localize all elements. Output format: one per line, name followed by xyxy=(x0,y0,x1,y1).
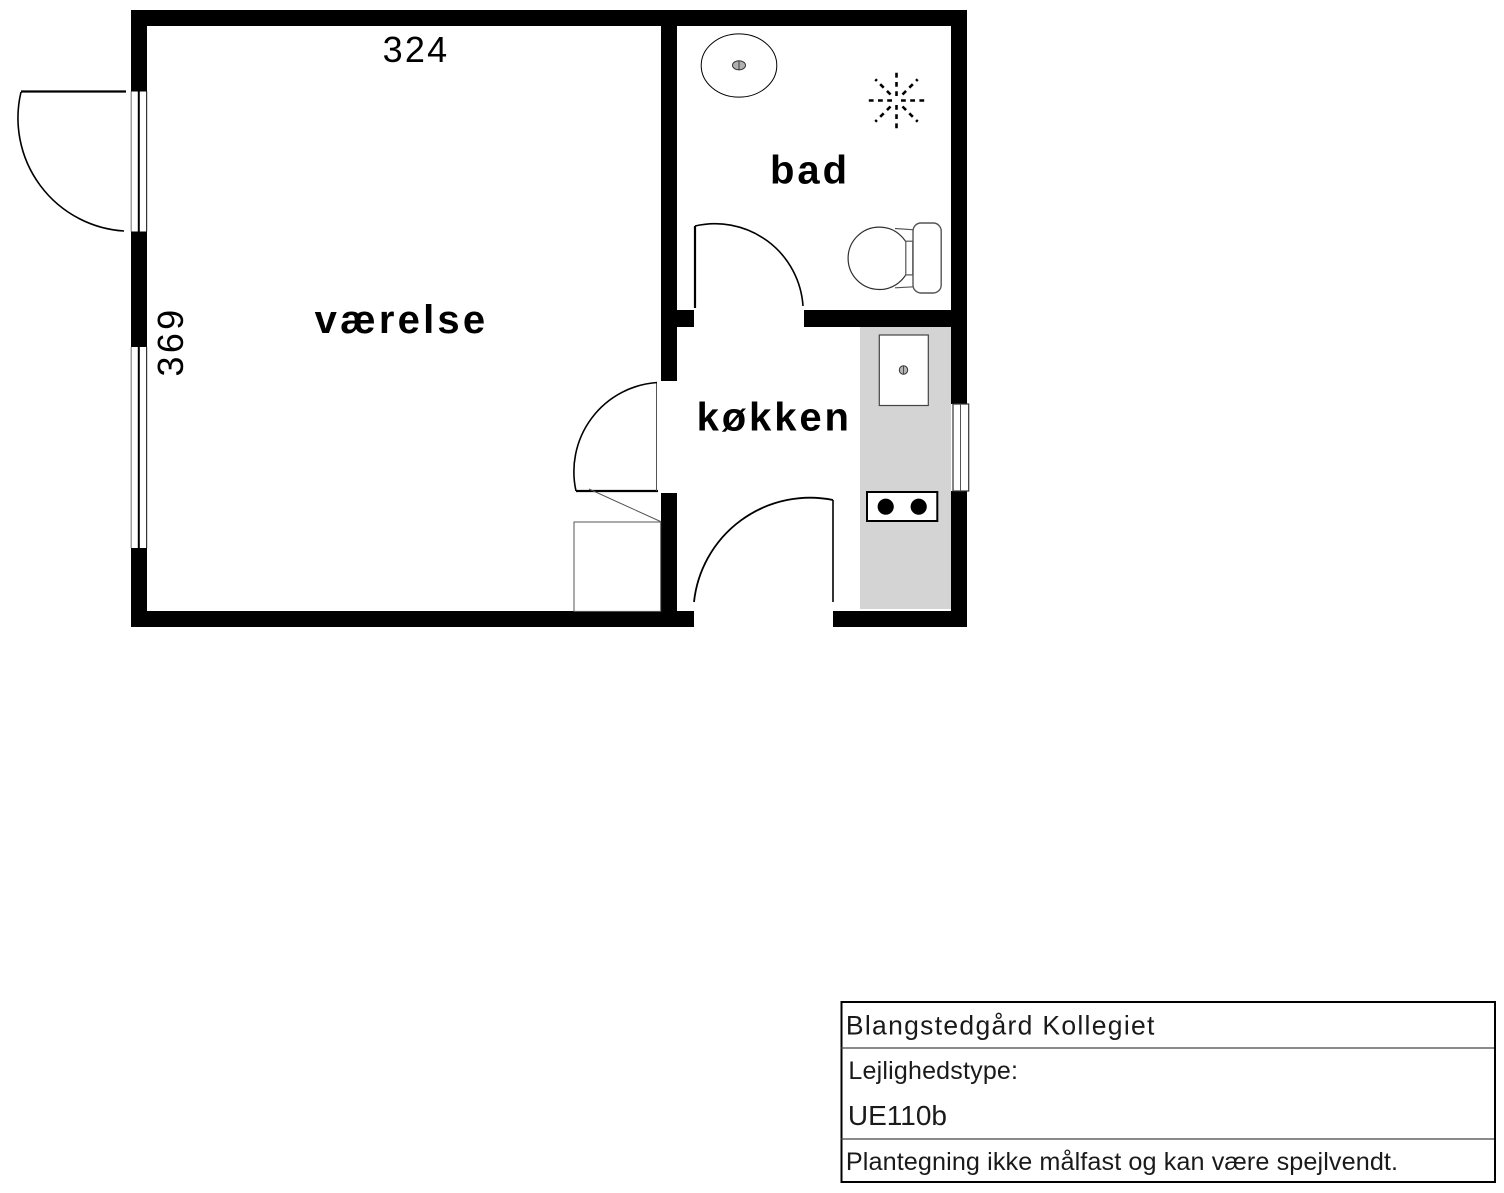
svg-text:Plantegning ikke målfast og ka: Plantegning ikke målfast og kan være spe… xyxy=(846,1148,1398,1176)
svg-text:324: 324 xyxy=(383,29,450,70)
svg-text:bad: bad xyxy=(770,148,850,192)
svg-text:Blangstedgård Kollegiet: Blangstedgård Kollegiet xyxy=(846,1011,1156,1041)
svg-text:369: 369 xyxy=(150,307,191,377)
svg-text:UE110b: UE110b xyxy=(848,1100,947,1131)
svg-text:Lejlighedstype:: Lejlighedstype: xyxy=(848,1057,1018,1085)
svg-text:køkken: køkken xyxy=(697,396,852,440)
svg-text:værelse: værelse xyxy=(315,298,489,342)
